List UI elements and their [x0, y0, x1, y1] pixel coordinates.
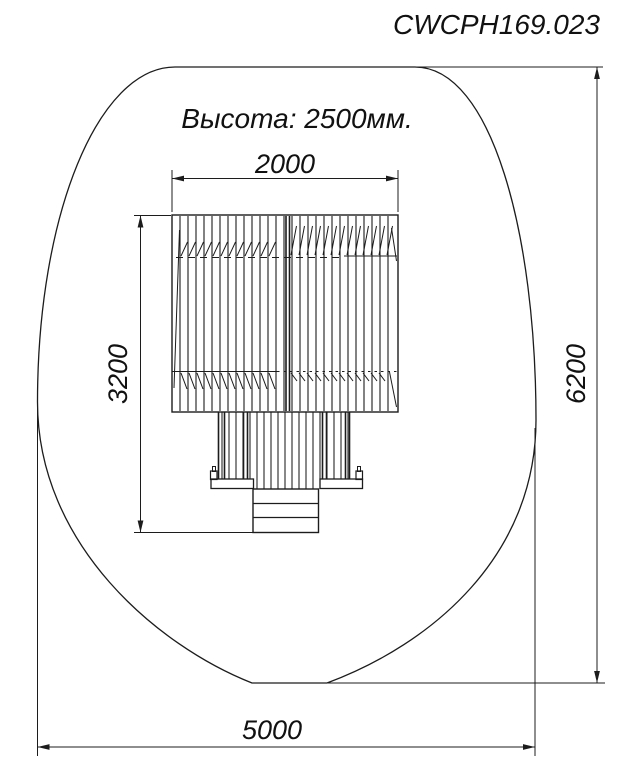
shingle-diagonal: [205, 373, 211, 389]
shingle-diagonal: [181, 373, 187, 389]
shingle-diagonal: [245, 373, 251, 389]
arrow-down-icon: [138, 521, 144, 533]
dim-label-top: 2000: [254, 149, 315, 179]
deck-board-lines: [222, 413, 348, 490]
staircase: [253, 489, 319, 533]
shingle-diagonal: [269, 373, 275, 389]
shingle-diagonal: [197, 242, 204, 256]
drawing-sheet: 2000 3200 6200 5000 CWCPH169.023 Высота:…: [0, 0, 639, 770]
shingle-diagonal: [221, 373, 227, 389]
arrow-down-icon: [594, 671, 600, 683]
dimension-right: 6200: [328, 67, 605, 683]
shingle-diagonal: [213, 242, 220, 256]
shingle-diagonal: [261, 242, 268, 256]
arrow-left-icon: [38, 744, 50, 750]
shingle-diagonal: [205, 242, 212, 256]
shingle-diagonal: [221, 242, 228, 256]
shingle-diagonal: [229, 242, 236, 256]
shingle-diagonal: [245, 242, 252, 256]
shingle-diagonal: [261, 373, 267, 389]
arrow-up-icon: [594, 67, 600, 79]
dimension-bottom: 5000: [38, 398, 536, 756]
shingle-diagonal: [213, 373, 219, 389]
dim-label-bottom: 5000: [242, 715, 302, 745]
arrow-up-icon: [138, 216, 144, 228]
dim-label-right: 6200: [561, 344, 591, 404]
railing-posts: [219, 413, 350, 479]
roof-hip-diagonal: [390, 372, 397, 407]
arrow-left-icon: [172, 176, 184, 182]
rail-bracket-right: [356, 471, 363, 480]
roof-hip-diagonal: [174, 230, 180, 388]
drawing-title: CWCPH169.023: [393, 9, 600, 40]
rail-bracket-left: [211, 471, 218, 480]
arrow-right-icon: [386, 176, 398, 182]
height-annotation: Высота: 2500мм.: [181, 103, 412, 134]
platform-deck: [211, 413, 363, 490]
rail-board-right: [320, 479, 363, 489]
shingle-diagonal: [197, 373, 203, 389]
technical-drawing-canvas: 2000 3200 6200 5000 CWCPH169.023 Высота:…: [0, 0, 639, 770]
dim-label-left: 3200: [103, 344, 133, 404]
dimension-top: 2000: [172, 149, 398, 212]
shingle-diagonal: [237, 373, 243, 389]
arrow-right-icon: [523, 744, 535, 750]
roof-plan: [172, 215, 398, 412]
shingle-diagonal: [269, 242, 276, 256]
shingle-diagonal: [253, 242, 260, 256]
staircase-outline: [253, 489, 319, 533]
shingle-diagonal: [189, 242, 196, 256]
shingle-diagonal: [189, 373, 195, 389]
shingle-diagonal: [229, 373, 235, 389]
shingle-diagonal: [253, 373, 259, 389]
rail-board-left: [211, 479, 254, 489]
shingle-diagonal: [181, 242, 188, 256]
shingle-diagonal: [237, 242, 244, 256]
